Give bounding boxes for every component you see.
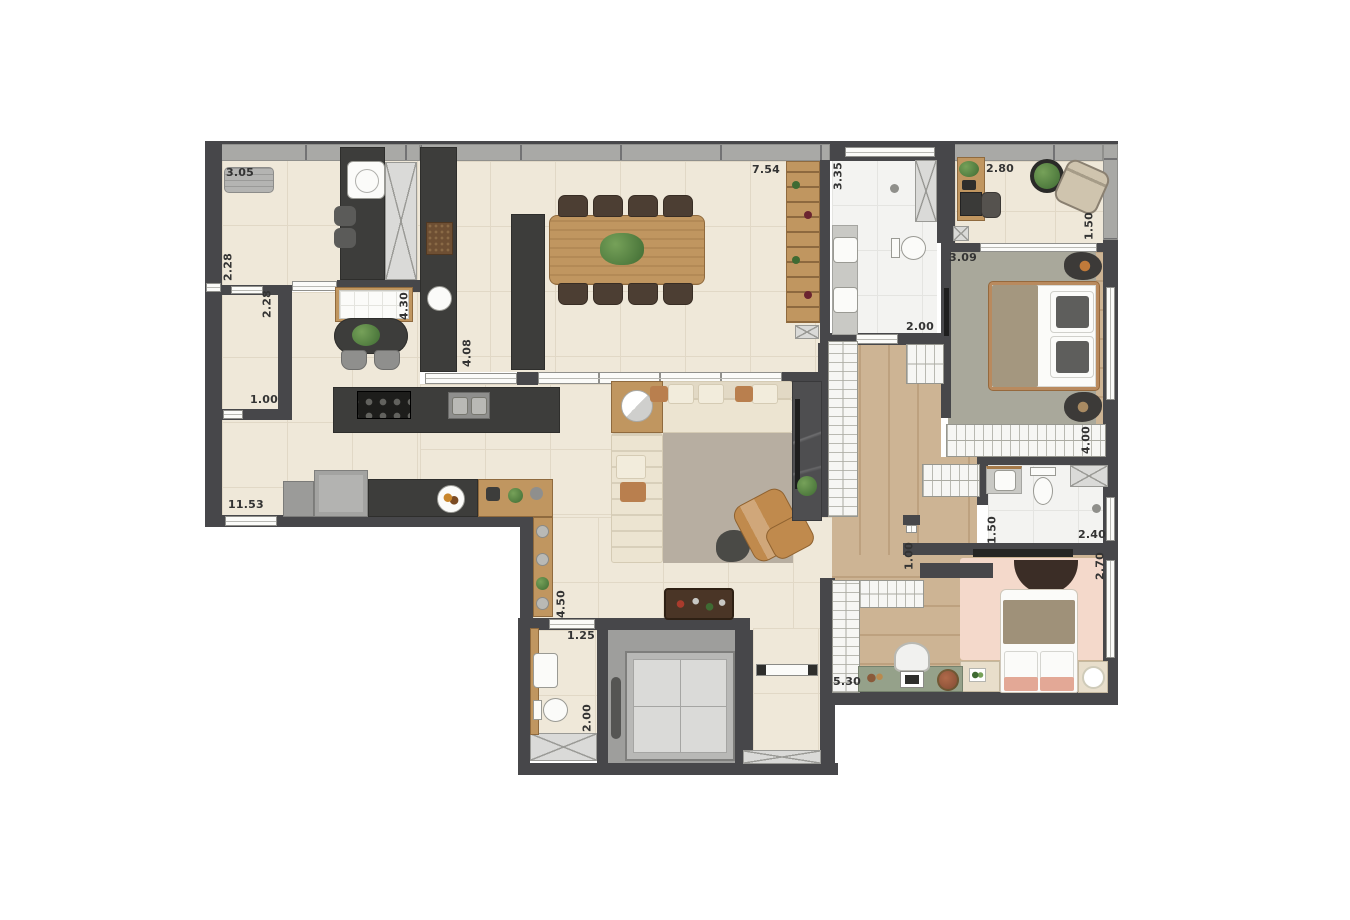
tv-screen (795, 399, 800, 489)
coffee-station (426, 222, 453, 255)
wall (518, 763, 838, 775)
laundry-sink-basin (355, 169, 379, 193)
powder-sink (533, 653, 558, 688)
bath-shaft (915, 160, 937, 222)
dim-hall-door-width: 1.00 (903, 542, 916, 570)
toilet-bowl (543, 698, 568, 722)
fruit-bowl (437, 485, 465, 513)
balcony-plant (1034, 163, 1060, 189)
laptop-screen (905, 675, 919, 684)
nightstand (960, 661, 1000, 692)
wall (520, 517, 533, 630)
dining-chair (663, 195, 693, 217)
desk-chair (894, 642, 930, 672)
toilet-tank (533, 700, 542, 720)
dim-kitchen-length: 4.08 (461, 339, 474, 367)
elevator-handle (611, 677, 621, 739)
wine-bottle (792, 181, 800, 189)
dim-lavabo-depth: 2.00 (581, 704, 594, 732)
dim-closet-length: 4.00 (1080, 426, 1093, 454)
dining-chair (593, 283, 623, 305)
bedroom2-tv (973, 549, 1073, 557)
wall (518, 618, 530, 775)
sink-bowl (471, 397, 487, 415)
wall (278, 295, 292, 420)
master-bath-door (856, 334, 898, 344)
table-lamp (621, 390, 653, 422)
bedroom2-window (1106, 560, 1115, 658)
shelf-item (530, 487, 543, 500)
plate-stack (536, 525, 549, 538)
sofa-pillow-tan (620, 482, 646, 502)
kitchen-pass-window (425, 373, 517, 384)
entry-hall-floor (753, 628, 820, 763)
bedroom-tv (944, 288, 949, 336)
bar-cart (664, 588, 734, 620)
round-mirror (1082, 666, 1105, 689)
nook-chair (374, 350, 400, 370)
desk-decor (866, 672, 884, 684)
bath-sink (833, 237, 858, 263)
sofa-pillow-tan (735, 386, 753, 402)
door-end (757, 665, 766, 675)
sofa-pillow (616, 455, 646, 479)
laptop (900, 671, 924, 688)
dining-centerpiece-plant (600, 233, 644, 265)
wine-rack (786, 161, 820, 323)
small-shaft (953, 226, 969, 241)
shower-head (1092, 504, 1101, 513)
dim-nook-length: 4.30 (398, 292, 411, 320)
desk-plant (937, 669, 959, 691)
wall (205, 141, 222, 527)
bed2-pillow-pink (1040, 677, 1074, 691)
service-pass-opening (292, 281, 337, 291)
door-jamb (206, 283, 221, 292)
service-shaft (385, 162, 417, 280)
dim-service-depth: 2.28 (222, 253, 235, 281)
master-bath-window (845, 147, 935, 157)
dining-chair (628, 283, 658, 305)
pantry-shelf-top (478, 479, 553, 517)
master-bedroom-window (1106, 287, 1115, 400)
wall (820, 160, 830, 343)
dim-master-bed-width: 3.09 (949, 251, 977, 264)
toilet-tank (891, 238, 900, 258)
pantry-shelf-side (533, 517, 553, 617)
refrigerator (314, 470, 368, 517)
facade-window-band (205, 144, 420, 161)
dim-pantry-length: 4.50 (555, 590, 568, 618)
powder-shaft (530, 733, 597, 761)
entry-shaft (743, 750, 821, 764)
dim-balcony-depth: 1.50 (1083, 212, 1096, 240)
desk-item (962, 180, 976, 190)
wc-service-door (231, 286, 263, 294)
dining-shaft (795, 325, 819, 339)
kitchen-cabinet (283, 481, 314, 517)
wine-bottle (804, 211, 812, 219)
plate-stack (536, 597, 549, 610)
cooktop (357, 391, 411, 419)
dim-bath2-depth: 1.50 (986, 516, 999, 544)
bed2-pillow-pink (1004, 677, 1038, 691)
dim-balcony-width: 2.80 (986, 162, 1014, 175)
toilet-bowl (1033, 477, 1053, 505)
dining-buffet (511, 214, 545, 370)
wine-bottle (792, 256, 800, 264)
laundry-basket (334, 228, 356, 248)
dim-master-bath-width: 2.00 (906, 320, 934, 333)
hall-door-jamb (906, 525, 917, 533)
dining-chair (663, 283, 693, 305)
facade-window-band (420, 144, 830, 161)
wall (735, 630, 753, 763)
toilet-tank (1030, 467, 1056, 476)
wc-service-door-2 (223, 410, 243, 419)
dim-plan-width: 11.53 (228, 498, 264, 511)
desk-monitor (960, 192, 982, 216)
laundry-basket (334, 206, 356, 226)
facade-window-band (1103, 144, 1118, 240)
elevator-cab (633, 659, 727, 753)
master-pillow-dark (1056, 296, 1089, 328)
nook-chair (341, 350, 367, 370)
corridor-wardrobe (906, 344, 944, 384)
dim-wc-service-depth: 2.28 (261, 290, 274, 318)
dim-wc-service-width: 1.00 (250, 393, 278, 406)
bath2-shaft (1070, 465, 1108, 487)
bath2-sink (994, 470, 1016, 491)
dining-chair (593, 195, 623, 217)
dim-bed2-depth: 2.70 (1094, 552, 1107, 580)
laundry-sink (347, 161, 385, 199)
dim-lavabo-width: 1.25 (567, 629, 595, 642)
wall (517, 372, 538, 385)
toilet-bowl (901, 236, 926, 260)
office-chair (981, 192, 1001, 218)
dining-chair (558, 195, 588, 217)
entry-door (756, 664, 818, 676)
corridor-wardrobe (922, 464, 980, 497)
dim-closet2-length: 5.30 (833, 675, 861, 688)
bath2-window (1106, 497, 1115, 541)
wall (920, 563, 993, 578)
console-plant (797, 476, 817, 496)
dim-master-bath-length: 3.35 (832, 162, 845, 190)
sofa-pillow (668, 384, 694, 404)
shelf-plant (536, 577, 549, 590)
dining-chair (628, 195, 658, 217)
balcony-bedroom-window (980, 243, 1097, 252)
kitchen-tall-counter (420, 147, 457, 372)
dim-service-width: 3.05 (226, 166, 254, 179)
bath-sink (833, 287, 858, 313)
toilet (533, 696, 569, 723)
wine-bottle (804, 291, 812, 299)
dining-chair (558, 283, 588, 305)
nightstand-plant-box (969, 668, 986, 682)
wall (597, 630, 608, 763)
prep-sink (427, 286, 452, 311)
nightstand (1064, 252, 1102, 280)
wall (820, 692, 1118, 705)
wall (1097, 243, 1105, 252)
sofa-pillow (752, 384, 778, 404)
kitchen-service-opening (225, 516, 277, 526)
door-end (808, 665, 817, 675)
shelf-plant (508, 488, 523, 503)
bed2-blanket (1003, 600, 1075, 644)
shower-head (890, 184, 899, 193)
shelf-item (486, 487, 500, 501)
toilet (1030, 467, 1056, 507)
nook-plant (352, 324, 380, 346)
plate-stack (536, 553, 549, 566)
master-bed-blanket (992, 285, 1038, 387)
desk-plant (959, 161, 979, 177)
dim-bath2-width: 2.40 (1078, 528, 1106, 541)
dim-living-width: 7.54 (752, 163, 780, 176)
toilet (891, 235, 927, 261)
sink-bowl (452, 397, 468, 415)
master-pillow-dark (1056, 341, 1089, 373)
sofa-pillow-tan (650, 386, 668, 402)
double-sink (448, 392, 490, 419)
sofa-pillow (698, 384, 724, 404)
nightstand (1078, 661, 1108, 693)
powder-room-door (549, 619, 595, 629)
corridor-wardrobe (828, 341, 858, 517)
floor-plan: 3.05 2.28 2.28 1.00 11.53 4.30 4.08 7.54… (0, 0, 1350, 920)
wall (903, 515, 920, 525)
